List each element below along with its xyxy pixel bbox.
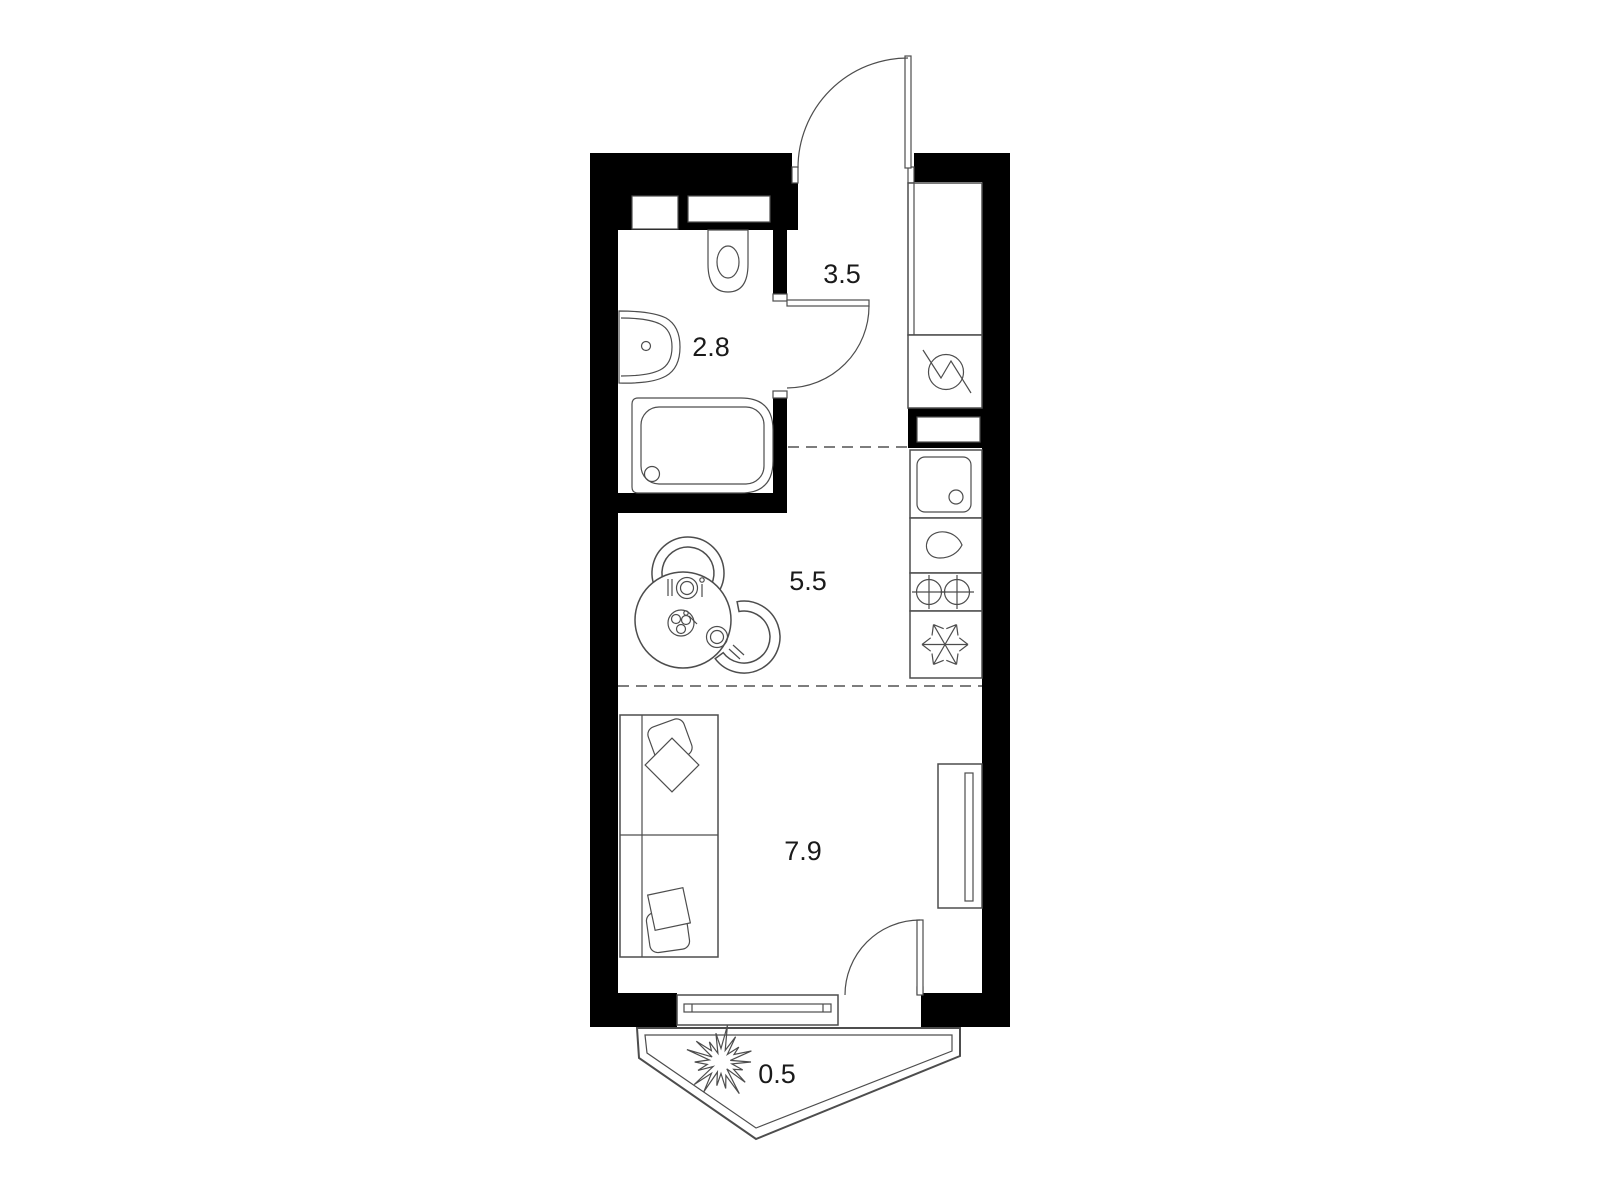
- entrance-door-jamb-left: [792, 167, 798, 183]
- bathroom-door: [773, 294, 869, 398]
- bathroom-right-wall-lower: [773, 392, 787, 503]
- entrance-door-jamb-right: [908, 167, 914, 183]
- pillow-icon: [648, 888, 691, 931]
- window: [677, 995, 838, 1025]
- vent-shaft-niche-3: [917, 417, 980, 442]
- plant-icon: [687, 1026, 752, 1094]
- dining-set: [635, 537, 780, 673]
- bottom-wall-right: [921, 993, 1010, 1027]
- entrance-door-swing-arc: [798, 58, 908, 168]
- bathroom-right-wall-upper: [773, 230, 787, 300]
- balcony-area-label: 0.5: [758, 1059, 796, 1089]
- bathroom-area-label: 2.8: [692, 332, 730, 362]
- vent-shaft-niche-1: [632, 196, 678, 229]
- wardrobe: [908, 183, 982, 335]
- left-wall: [590, 182, 618, 1027]
- vent-shaft-niche-2: [688, 196, 770, 222]
- sink-icon: [619, 311, 680, 383]
- balcony-door-leaf: [917, 920, 923, 995]
- bathroom-door-jamb-bottom: [773, 391, 787, 398]
- tv-stand-icon: [938, 764, 982, 908]
- bathroom-door-jamb-top: [773, 294, 787, 301]
- floor-plan-svg: 3.5 2.8 5.5 7.9 0.5: [0, 0, 1600, 1200]
- dining-table-icon: [635, 572, 731, 668]
- kitchen-worktop: [910, 518, 982, 573]
- hallway-area-label: 3.5: [823, 259, 861, 289]
- right-wall: [982, 153, 1010, 1027]
- balcony-outline: [637, 1028, 960, 1139]
- balcony: [637, 1026, 960, 1139]
- bathroom-door-swing-arc: [787, 306, 869, 388]
- window-glazing: [684, 1004, 831, 1012]
- bathroom-bottom-wall: [618, 493, 787, 513]
- bathroom-door-leaf: [787, 300, 869, 306]
- balcony-door-swing-arc: [845, 920, 920, 995]
- balcony-inner-line: [645, 1035, 952, 1128]
- kitchen-area-label: 5.5: [789, 566, 827, 596]
- top-wall-left: [590, 153, 792, 182]
- sofa-icon: [620, 715, 718, 957]
- toilet-icon: [708, 230, 748, 292]
- wardrobe-body: [908, 183, 982, 335]
- balcony-door: [845, 920, 923, 995]
- washing-machine-icon: [908, 335, 982, 408]
- entrance-door-leaf: [905, 56, 911, 168]
- bathtub-icon: [632, 398, 773, 493]
- bottom-wall-left: [590, 993, 677, 1027]
- floor-plan-page: 3.5 2.8 5.5 7.9 0.5: [0, 0, 1600, 1200]
- entrance-door: [792, 56, 914, 183]
- living-room-area-label: 7.9: [784, 836, 822, 866]
- kitchen-counter: [910, 450, 982, 678]
